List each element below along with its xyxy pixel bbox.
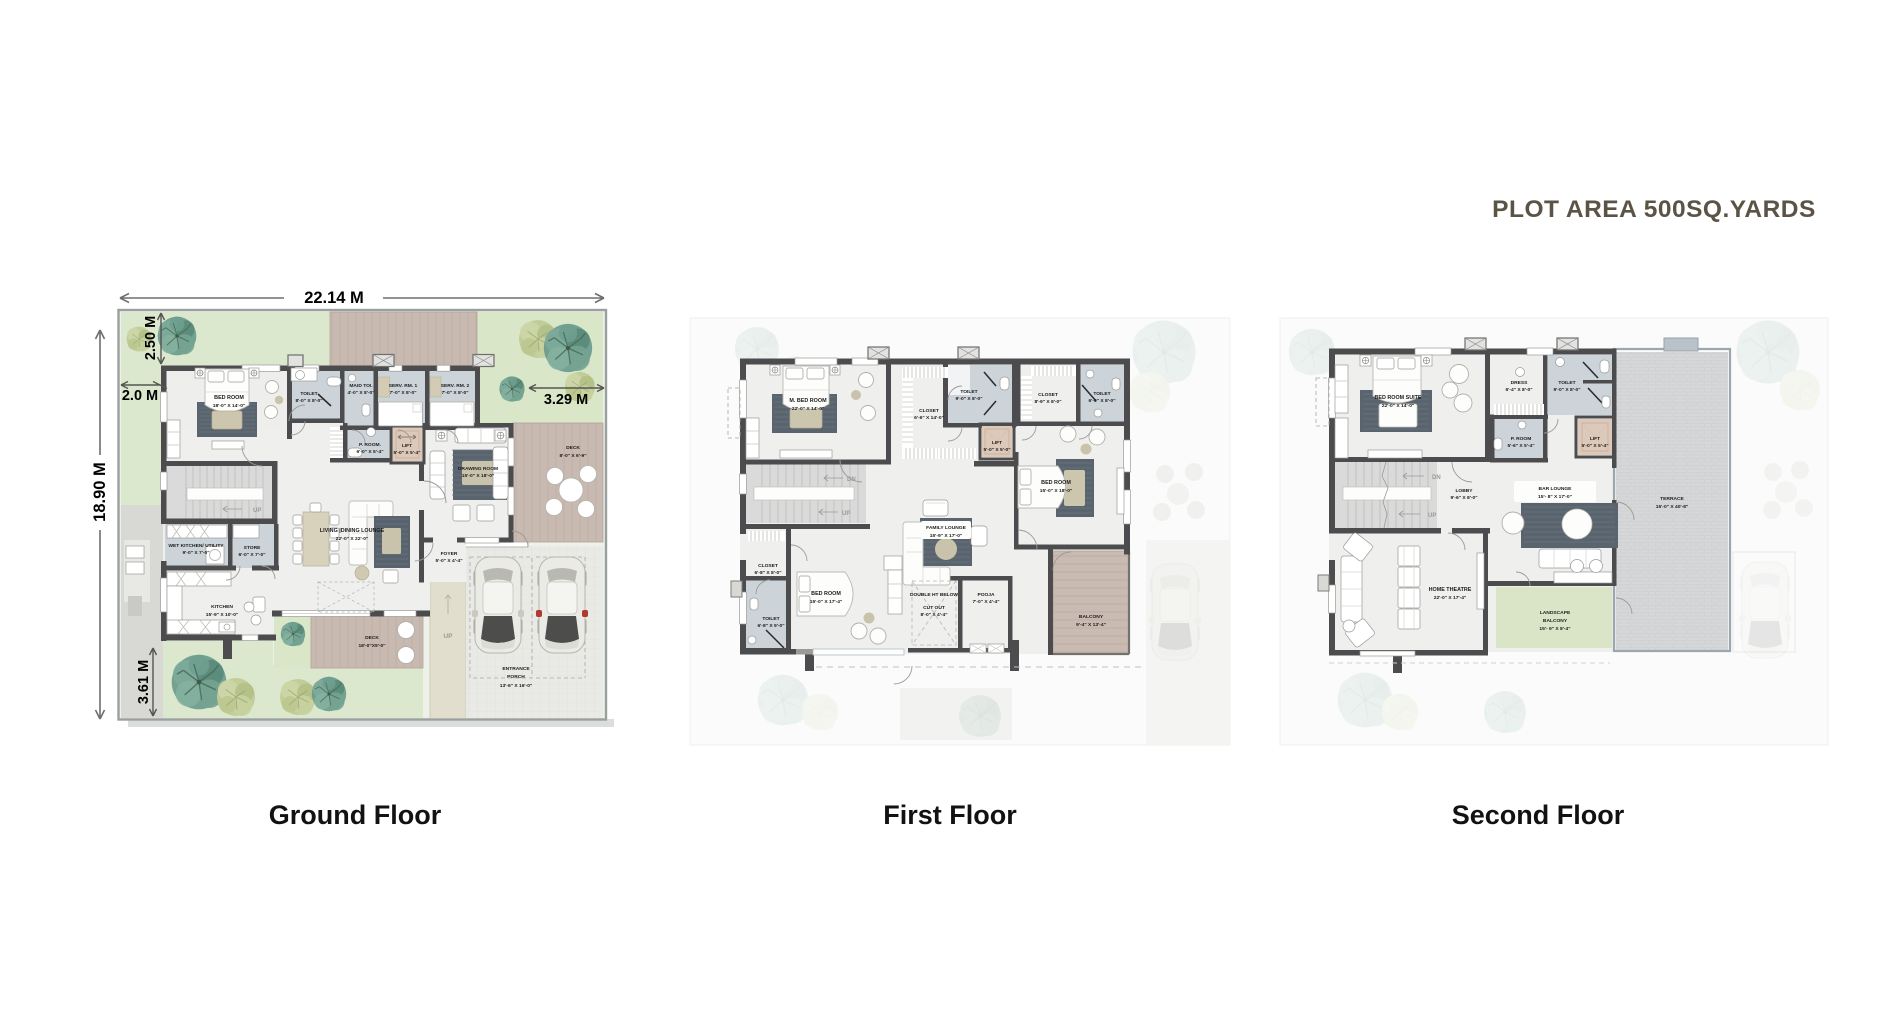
svg-text:4'-0" X 8'-0": 4'-0" X 8'-0" — [347, 390, 374, 396]
svg-text:15'-0" X 40'-8": 15'-0" X 40'-8" — [1656, 504, 1689, 510]
svg-text:8'-0" X 4'-4": 8'-0" X 4'-4" — [920, 612, 947, 618]
svg-text:3.29 M: 3.29 M — [544, 392, 588, 408]
svg-text:5'-0" X 5'-0": 5'-0" X 5'-0" — [983, 447, 1010, 453]
svg-text:TOILET: TOILET — [1093, 391, 1110, 397]
svg-text:8'-0'' X 6'-9'': 8'-0'' X 6'-9'' — [559, 453, 586, 459]
svg-text:LANDSCAPE: LANDSCAPE — [1540, 610, 1571, 616]
svg-text:LIVING |DINING LOUNGE: LIVING |DINING LOUNGE — [320, 528, 385, 534]
svg-text:ENTRANCE: ENTRANCE — [502, 666, 530, 672]
svg-text:5'-6" X 5'-4": 5'-6" X 5'-4" — [1507, 443, 1534, 449]
svg-text:9'-6" X 8'-0": 9'-6" X 8'-0" — [1450, 495, 1477, 501]
svg-text:CLOSET: CLOSET — [919, 408, 939, 414]
svg-text:CUT OUT: CUT OUT — [923, 605, 945, 611]
svg-text:15'-9" X 10'-0": 15'-9" X 10'-0" — [206, 612, 239, 618]
svg-text:TOILET: TOILET — [762, 616, 779, 622]
svg-text:6'-0" X 7'-0": 6'-0" X 7'-0" — [238, 552, 265, 558]
svg-text:22'-0" X 17'-4": 22'-0" X 17'-4" — [1434, 595, 1467, 601]
svg-text:UP: UP — [443, 633, 453, 640]
svg-text:P. ROOM: P. ROOM — [1511, 436, 1532, 442]
svg-text:P. ROOM.: P. ROOM. — [359, 442, 382, 448]
svg-text:15'- 9" X 8'-4": 15'- 9" X 8'-4" — [1539, 626, 1570, 632]
svg-text:DRESS: DRESS — [1511, 380, 1529, 386]
svg-text:KITCHEN: KITCHEN — [211, 604, 233, 610]
svg-text:SERV. RM. 2: SERV. RM. 2 — [441, 383, 470, 389]
svg-text:18'-0" X 14'-0": 18'-0" X 14'-0" — [213, 403, 246, 409]
svg-text:STORE: STORE — [244, 545, 261, 551]
svg-text:15'- 8" X 17'-0": 15'- 8" X 17'-0" — [1538, 494, 1572, 500]
svg-text:BALCONY: BALCONY — [1079, 614, 1104, 620]
svg-text:FAMILY LOUNGE: FAMILY LOUNGE — [926, 525, 966, 531]
svg-text:PORCH: PORCH — [507, 674, 525, 680]
svg-text:22'-0" X 14'-0": 22'-0" X 14'-0" — [792, 406, 825, 412]
svg-text:9'-4" X 13'-4": 9'-4" X 13'-4" — [1076, 622, 1106, 628]
svg-text:8'-0" X 8'-0": 8'-0" X 8'-0" — [295, 398, 322, 404]
svg-text:9'-0" X 8'-0": 9'-0" X 8'-0" — [1553, 387, 1580, 393]
svg-text:TOILET: TOILET — [960, 389, 977, 395]
svg-text:UP: UP — [842, 511, 850, 517]
svg-text:LIFT: LIFT — [992, 440, 1002, 446]
svg-text:5'-0" X 5'-4": 5'-0" X 5'-4" — [1581, 443, 1608, 449]
svg-text:LOBBY: LOBBY — [1455, 488, 1473, 494]
svg-text:18'-0''X9'-0'': 18'-0''X9'-0'' — [358, 643, 385, 649]
svg-text:5'-0" X 4'-4": 5'-0" X 4'-4" — [435, 558, 462, 564]
svg-text:15'-0" X 17'-4": 15'-0" X 17'-4" — [810, 599, 843, 605]
svg-text:6'-8" X 9'-0": 6'-8" X 9'-0" — [757, 623, 784, 629]
svg-text:Ground Floor: Ground Floor — [269, 800, 442, 830]
svg-text:CLOSET: CLOSET — [758, 563, 778, 569]
svg-text:TOILET: TOILET — [300, 391, 317, 397]
svg-text:7'-0" X 8'-0": 7'-0" X 8'-0" — [389, 390, 416, 396]
svg-text:BED ROOM: BED ROOM — [811, 591, 841, 597]
svg-text:CLOSET: CLOSET — [1038, 392, 1058, 398]
svg-text:7'-0" X 4'-4": 7'-0" X 4'-4" — [972, 599, 999, 605]
svg-text:First Floor: First Floor — [883, 800, 1017, 830]
svg-text:SERV. RM. 1: SERV. RM. 1 — [389, 383, 418, 389]
svg-text:13'-6" X 16'-0": 13'-6" X 16'-0" — [500, 683, 533, 689]
svg-text:M. BED ROOM: M. BED ROOM — [789, 398, 827, 404]
svg-text:6'-4" X 8'-0": 6'-4" X 8'-0" — [1505, 387, 1532, 393]
svg-text:Second Floor: Second Floor — [1452, 800, 1625, 830]
svg-text:MAID TOI.: MAID TOI. — [349, 383, 373, 389]
svg-text:DRAWING ROOM: DRAWING ROOM — [458, 466, 498, 472]
svg-text:HOME THEATRE: HOME THEATRE — [1429, 587, 1472, 593]
svg-text:6'-0" X 8'-0": 6'-0" X 8'-0" — [1088, 398, 1115, 404]
svg-text:TOILET: TOILET — [1558, 380, 1575, 386]
svg-text:15'-0" X 18'-0": 15'-0" X 18'-0" — [462, 473, 495, 479]
svg-text:BED ROOM SUITE: BED ROOM SUITE — [1374, 395, 1421, 401]
svg-text:DECK: DECK — [566, 445, 580, 451]
svg-text:LIFT: LIFT — [1590, 436, 1600, 442]
svg-text:DN: DN — [847, 477, 856, 483]
svg-text:8'-9" X 8'-0": 8'-9" X 8'-0" — [1034, 399, 1061, 405]
svg-text:UP: UP — [1428, 513, 1436, 519]
svg-text:22'-0" X 22'-0": 22'-0" X 22'-0" — [336, 536, 369, 542]
svg-text:2.50 M: 2.50 M — [143, 316, 159, 360]
svg-text:7'-0" X 8'-0": 7'-0" X 8'-0" — [441, 390, 468, 396]
svg-text:6'-0" X 5'-4": 6'-0" X 5'-4" — [356, 449, 383, 455]
svg-text:WET KITCHEN/ UTILITY: WET KITCHEN/ UTILITY — [168, 543, 224, 549]
svg-text:FOYER: FOYER — [441, 551, 458, 557]
svg-text:15'-0" X 18'-0": 15'-0" X 18'-0" — [1040, 488, 1073, 494]
svg-text:6'-8" X 8'-0": 6'-8" X 8'-0" — [754, 570, 781, 576]
svg-text:BED ROOM: BED ROOM — [214, 395, 244, 401]
svg-text:3.61 M: 3.61 M — [136, 660, 152, 704]
svg-text:9'-0" X 8'-0": 9'-0" X 8'-0" — [955, 396, 982, 402]
svg-text:DOUBLE HT BELOW: DOUBLE HT BELOW — [910, 592, 958, 598]
svg-text:6'-6" X 14'-0": 6'-6" X 14'-0" — [914, 415, 944, 421]
svg-text:UP: UP — [253, 508, 261, 514]
svg-text:22.14 M: 22.14 M — [304, 289, 364, 307]
svg-text:5'-0" X 5'-4": 5'-0" X 5'-4" — [393, 450, 420, 456]
svg-text:BAR LOUNGE: BAR LOUNGE — [1539, 486, 1573, 492]
svg-text:TERRACE: TERRACE — [1660, 496, 1684, 502]
svg-text:15'-9" X 17'-0": 15'-9" X 17'-0" — [930, 533, 963, 539]
svg-text:DECK: DECK — [365, 635, 379, 641]
svg-text:18.90 M: 18.90 M — [91, 462, 109, 522]
svg-text:2.0 M: 2.0 M — [122, 388, 158, 404]
svg-text:9'-0" X 7'-0": 9'-0" X 7'-0" — [182, 550, 209, 556]
svg-text:BED ROOM: BED ROOM — [1041, 480, 1071, 486]
svg-text:LIFT: LIFT — [402, 443, 412, 449]
svg-text:PLOT AREA 500SQ.YARDS: PLOT AREA 500SQ.YARDS — [1492, 196, 1816, 223]
svg-text:22'-0" X 14'-0": 22'-0" X 14'-0" — [1382, 403, 1415, 409]
svg-text:DN: DN — [1432, 475, 1441, 481]
svg-text:POOJA: POOJA — [977, 592, 995, 598]
svg-text:BALCONY: BALCONY — [1543, 618, 1568, 624]
